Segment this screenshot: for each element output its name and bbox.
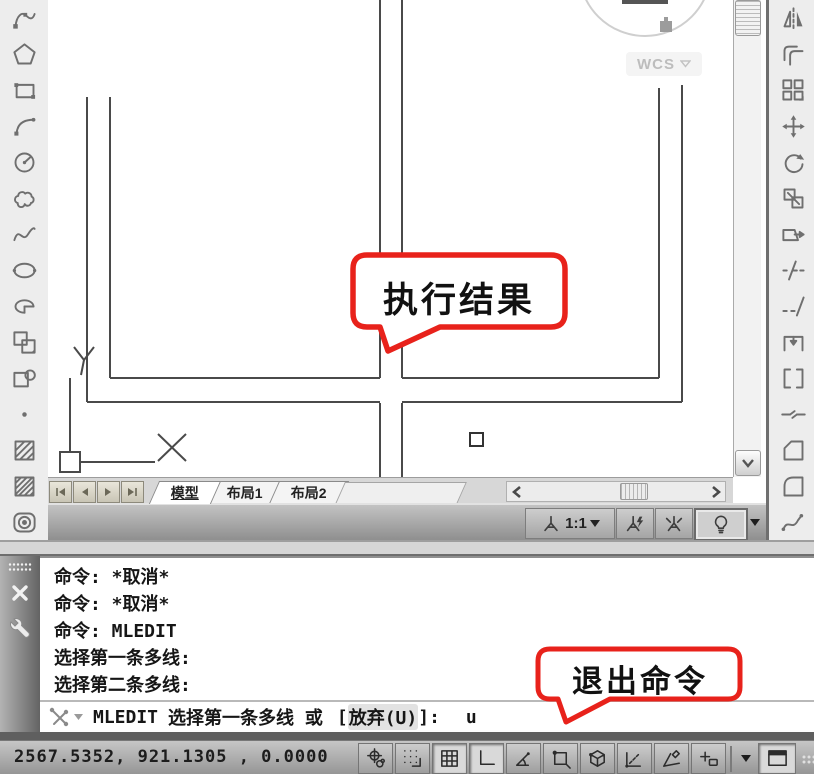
command-history-line: 命令: *取消* [54, 564, 814, 591]
chevron-down-icon [741, 755, 751, 762]
arc-button[interactable] [6, 108, 42, 144]
rectangle-icon [11, 77, 38, 104]
object-snap-tracking-icon [623, 747, 646, 770]
join-icon [780, 401, 807, 428]
drawing-canvas[interactable]: 执行结果 WCS [48, 0, 733, 477]
revcloud-icon [11, 185, 38, 212]
polyline-icon [11, 5, 38, 32]
statusbar-menu-button[interactable] [736, 744, 756, 773]
make-block-button[interactable] [6, 360, 42, 396]
prompt-option-undo[interactable]: 放弃(U) [348, 704, 419, 730]
viewcube-ring [579, 0, 711, 36]
blend-curves-icon [780, 509, 807, 536]
fillet-icon [780, 473, 807, 500]
revcloud-button[interactable] [6, 180, 42, 216]
annotation-scale-icon [540, 513, 562, 535]
viewcube-edge [622, 0, 668, 4]
statusbar-divider [0, 732, 814, 740]
chamfer-icon [780, 437, 807, 464]
hatch-button[interactable] [6, 432, 42, 468]
lightbulb-toggle-button[interactable] [694, 508, 748, 541]
ellipse-arc-button[interactable] [6, 288, 42, 324]
chevron-down-icon [741, 458, 755, 468]
annotation-scale-bar: 1:1 [48, 503, 766, 540]
layout-tab-bar: 模型 布局1 布局2 [48, 477, 733, 504]
snap-button[interactable] [358, 743, 393, 774]
make-block-icon [11, 365, 38, 392]
insert-block-icon [11, 329, 38, 356]
chevron-down-icon [680, 60, 691, 68]
break-button[interactable] [775, 360, 811, 396]
join-button[interactable] [775, 396, 811, 432]
break-at-point-icon [780, 329, 807, 356]
arc-icon [11, 113, 38, 140]
blend-curves-button[interactable] [775, 504, 811, 540]
break-at-point-button[interactable] [775, 324, 811, 360]
ortho-button[interactable] [469, 743, 504, 774]
move-icon [780, 113, 807, 140]
circle-icon [11, 149, 38, 176]
chevron-down-icon [590, 520, 600, 527]
previous-tab-icon [80, 487, 89, 497]
chamfer-button[interactable] [775, 432, 811, 468]
chevron-down-icon[interactable] [74, 714, 83, 720]
command-history-line: 命令: MLEDIT [54, 618, 814, 645]
trim-button[interactable] [775, 252, 811, 288]
rotate-icon [780, 149, 807, 176]
polar-tracking-icon [512, 747, 535, 770]
tab-model[interactable]: 模型 [149, 481, 221, 504]
prompt-command: MLEDIT [93, 707, 158, 728]
mirror-button[interactable] [775, 0, 811, 36]
ellipse-button[interactable] [6, 252, 42, 288]
stretch-button[interactable] [775, 216, 811, 252]
callout-exit-label: 退出命令 [538, 656, 742, 701]
dynamic-input-button[interactable] [691, 743, 726, 774]
circle-button[interactable] [6, 144, 42, 180]
ellipse-arc-icon [11, 293, 38, 320]
vertical-scrollbar-thumb[interactable] [735, 0, 761, 36]
chevron-right-icon [711, 486, 721, 498]
statusbar-separator [730, 746, 732, 772]
prompt-bracket-close: ]: [418, 707, 440, 728]
dynamic-input-icon [697, 747, 720, 770]
grid-button[interactable] [432, 743, 467, 774]
annotation-menu-button[interactable] [747, 508, 763, 537]
chevron-left-icon [512, 486, 522, 498]
close-icon[interactable] [10, 583, 30, 603]
annotation-scale-button[interactable]: 1:1 [525, 508, 615, 539]
clean-screen-button[interactable] [758, 743, 796, 774]
viewcube-compass-icon [660, 17, 672, 32]
rotate-button[interactable] [775, 144, 811, 180]
polygon-button[interactable] [6, 36, 42, 72]
mirror-icon [780, 5, 807, 32]
pickbox-cursor [470, 433, 483, 446]
prompt-text: 选择第一条多线 或 [168, 704, 323, 730]
grid-display-icon [401, 747, 424, 770]
polyline-button[interactable] [6, 0, 42, 36]
array-icon [780, 77, 807, 104]
grid-display-button[interactable] [395, 743, 430, 774]
break-icon [780, 365, 807, 392]
scroll-left-button[interactable] [507, 483, 526, 500]
command-window-divider[interactable] [0, 540, 814, 556]
horizontal-scrollbar[interactable] [506, 481, 726, 502]
first-tab-button[interactable] [49, 481, 72, 503]
annotation-autoscale-icon [663, 513, 685, 535]
offset-icon [780, 41, 807, 68]
modify-toolbar [766, 0, 814, 540]
point-button[interactable] [6, 396, 42, 432]
coordinates-readout: 2567.5352, 921.1305 , 0.0000 [14, 747, 329, 767]
command-history-line: 命令: *取消* [54, 591, 814, 618]
object-snap-icon [549, 747, 572, 770]
callout-result-label: 执行结果 [353, 272, 565, 323]
object-snap-button[interactable] [543, 743, 578, 774]
autocad-window: { "left_toolbar": { "name": "draw-toolba… [0, 0, 814, 774]
region-icon [11, 509, 38, 536]
3d-object-snap-button[interactable] [580, 743, 615, 774]
3d-object-snap-icon [586, 747, 609, 770]
clean-screen-icon [766, 747, 789, 770]
ucs-icon [60, 347, 186, 472]
spline-icon [11, 221, 38, 248]
draw-toolbar [0, 0, 50, 540]
last-tab-button[interactable] [121, 481, 144, 503]
vertical-scrollbar[interactable] [733, 0, 761, 477]
dynamic-ucs-icon [660, 747, 683, 770]
grip-dots-icon[interactable] [8, 562, 32, 571]
annotation-autoscale-button[interactable] [655, 508, 693, 539]
array-button[interactable] [775, 72, 811, 108]
spline-button[interactable] [6, 216, 42, 252]
ellipse-icon [11, 257, 38, 284]
offset-button[interactable] [775, 36, 811, 72]
previous-tab-button[interactable] [73, 481, 96, 503]
insert-block-button[interactable] [6, 324, 42, 360]
stretch-icon [780, 221, 807, 248]
dynamic-ucs-button[interactable] [654, 743, 689, 774]
scroll-right-button[interactable] [706, 483, 725, 500]
annotation-visibility-button[interactable] [616, 508, 654, 539]
ortho-icon [475, 747, 498, 770]
region-button[interactable] [6, 504, 42, 540]
scale-icon [780, 185, 807, 212]
command-window-grab-bar[interactable] [0, 556, 40, 732]
snap-icon [364, 747, 387, 770]
fillet-button[interactable] [775, 468, 811, 504]
scale-button[interactable] [775, 180, 811, 216]
hatch-icon [11, 437, 38, 464]
gradient-icon [11, 473, 38, 500]
gradient-button[interactable] [6, 468, 42, 504]
annotation-scale-value: 1:1 [565, 515, 587, 532]
chevron-down-icon [750, 519, 760, 526]
first-tab-icon [55, 487, 66, 497]
object-snap-tracking-button[interactable] [617, 743, 652, 774]
command-input-value[interactable]: u [466, 707, 477, 728]
polar-tracking-button[interactable] [506, 743, 541, 774]
prompt-bracket-open: [ [337, 707, 348, 728]
polygon-icon [11, 41, 38, 68]
recent-commands-icon[interactable] [48, 705, 72, 729]
extend-icon [780, 293, 807, 320]
grid-icon [438, 747, 461, 770]
last-tab-icon [127, 487, 138, 497]
status-bar: 2567.5352, 921.1305 , 0.0000 [0, 740, 814, 774]
wrench-icon[interactable] [7, 615, 33, 645]
extend-button[interactable] [775, 288, 811, 324]
horizontal-scrollbar-thumb[interactable] [620, 483, 648, 500]
rectangle-button[interactable] [6, 72, 42, 108]
tray-dots-icon [798, 744, 814, 773]
point-icon [11, 401, 38, 428]
next-tab-button[interactable] [97, 481, 120, 503]
scroll-down-button[interactable] [735, 450, 761, 476]
move-button[interactable] [775, 108, 811, 144]
wcs-label: WCS [637, 56, 675, 73]
lightbulb-icon [710, 514, 732, 536]
next-tab-icon [104, 487, 113, 497]
tab-filler [335, 482, 467, 504]
trim-icon [780, 257, 807, 284]
wcs-dropdown[interactable]: WCS [626, 52, 702, 76]
annotation-visibility-icon [624, 513, 646, 535]
